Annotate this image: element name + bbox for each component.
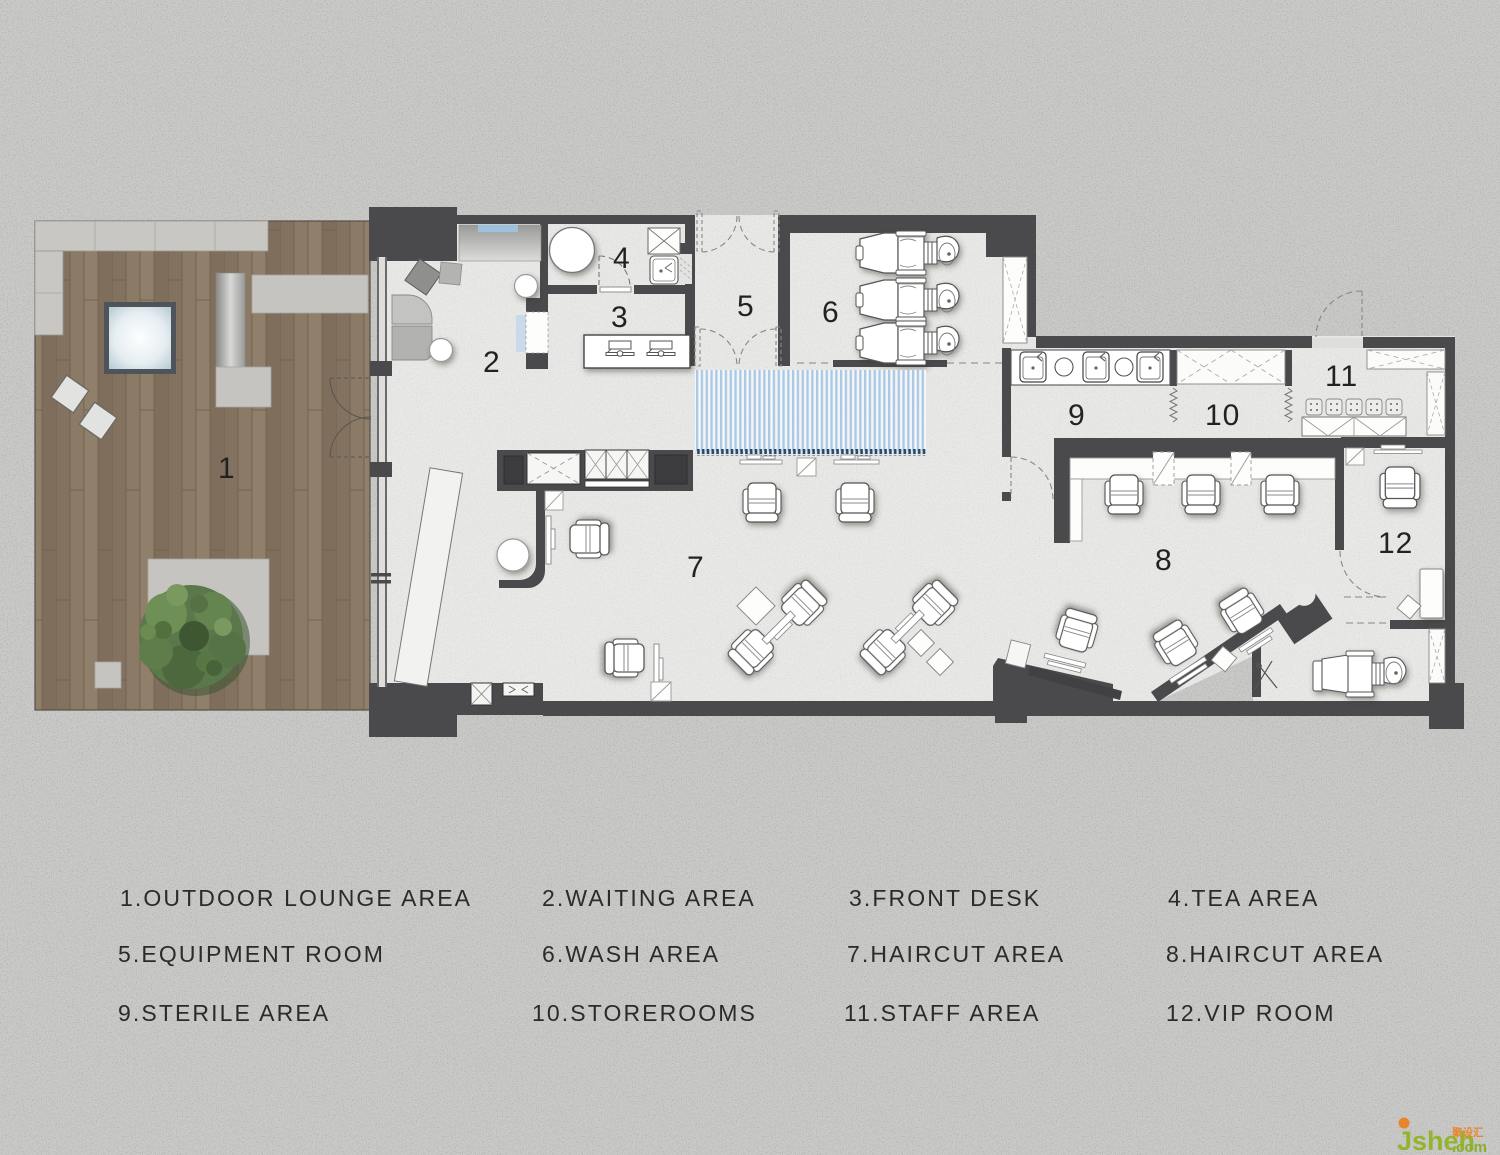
svg-text:3.FRONT DESK: 3.FRONT DESK xyxy=(849,885,1041,911)
svg-text:6.WASH AREA: 6.WASH AREA xyxy=(542,941,720,967)
svg-text:5: 5 xyxy=(737,290,755,323)
svg-text:12.VIP ROOM: 12.VIP ROOM xyxy=(1166,1000,1336,1026)
svg-text:8.HAIRCUT AREA: 8.HAIRCUT AREA xyxy=(1166,941,1384,967)
svg-text:4.TEA AREA: 4.TEA AREA xyxy=(1168,885,1319,911)
svg-text:7: 7 xyxy=(687,551,705,584)
svg-text:12: 12 xyxy=(1378,527,1413,560)
svg-text:6: 6 xyxy=(822,296,840,329)
svg-text:5.EQUIPMENT ROOM: 5.EQUIPMENT ROOM xyxy=(118,941,385,967)
svg-text:7.HAIRCUT AREA: 7.HAIRCUT AREA xyxy=(847,941,1065,967)
svg-text:11.STAFF AREA: 11.STAFF AREA xyxy=(844,1000,1040,1026)
svg-text:10: 10 xyxy=(1205,399,1240,432)
svg-text:2: 2 xyxy=(483,346,501,379)
svg-text:3: 3 xyxy=(611,301,629,334)
svg-text:9.STERILE AREA: 9.STERILE AREA xyxy=(118,1000,330,1026)
svg-text:1.OUTDOOR LOUNGE AREA: 1.OUTDOOR LOUNGE AREA xyxy=(120,885,472,911)
svg-text:11: 11 xyxy=(1325,360,1358,393)
svg-text:.com: .com xyxy=(1452,1139,1487,1155)
svg-text:1: 1 xyxy=(218,452,236,485)
svg-text:8: 8 xyxy=(1155,544,1173,577)
svg-text:4: 4 xyxy=(613,242,631,275)
svg-text:9: 9 xyxy=(1068,399,1086,432)
svg-text:2.WAITING AREA: 2.WAITING AREA xyxy=(542,885,756,911)
svg-text:10.STOREROOMS: 10.STOREROOMS xyxy=(532,1000,757,1026)
svg-text:聚设汇: 聚设汇 xyxy=(1451,1126,1484,1139)
